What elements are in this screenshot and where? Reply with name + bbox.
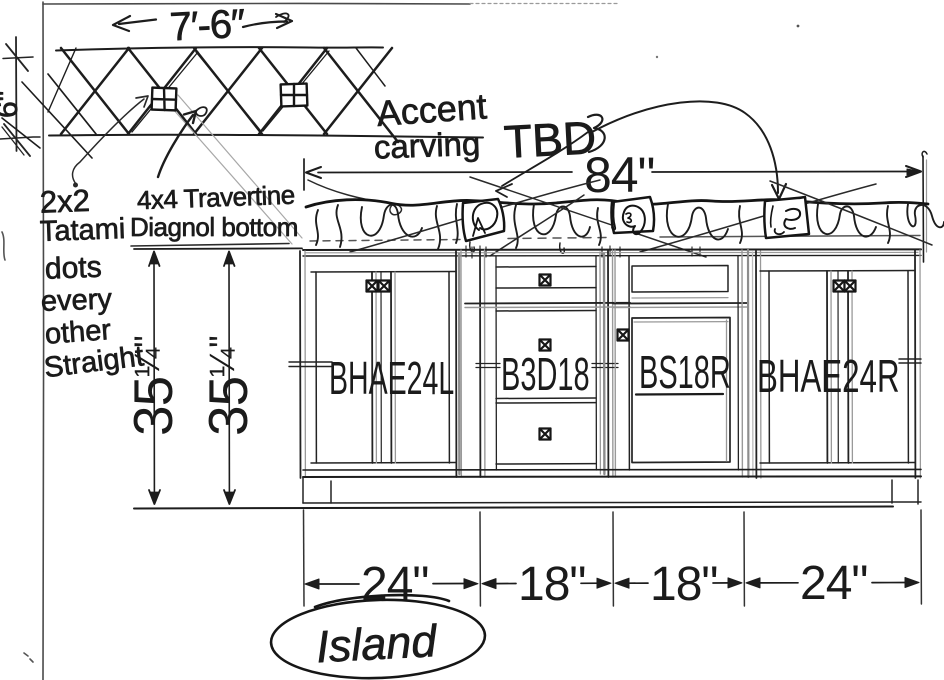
svg-text:carving: carving [373, 125, 481, 166]
svg-text:6": 6" [0, 91, 24, 118]
svg-text:every: every [40, 283, 112, 317]
svg-text:¼": ¼" [128, 335, 167, 377]
svg-text:BHAE24L: BHAE24L [329, 353, 454, 405]
svg-text:24": 24" [361, 558, 428, 611]
svg-text:35: 35 [197, 377, 259, 436]
svg-text:18": 18" [518, 558, 585, 611]
svg-text:18": 18" [650, 558, 717, 611]
svg-text:7′-6″: 7′-6″ [169, 2, 247, 50]
svg-text:Island: Island [315, 615, 440, 672]
svg-text:¼": ¼" [203, 335, 242, 377]
svg-text:35: 35 [122, 377, 184, 436]
svg-text:BS18R: BS18R [639, 347, 731, 398]
svg-text:Diagnol bottom: Diagnol bottom [130, 212, 298, 242]
svg-text:BHAE24R: BHAE24R [757, 351, 900, 402]
svg-text:B3D18: B3D18 [501, 349, 590, 400]
svg-text:Tatami: Tatami [39, 213, 125, 248]
svg-text:24": 24" [800, 557, 867, 610]
svg-text:84": 84" [584, 147, 654, 203]
svg-text:4x4 Travertine: 4x4 Travertine [136, 180, 295, 215]
svg-text:dots: dots [44, 251, 102, 286]
